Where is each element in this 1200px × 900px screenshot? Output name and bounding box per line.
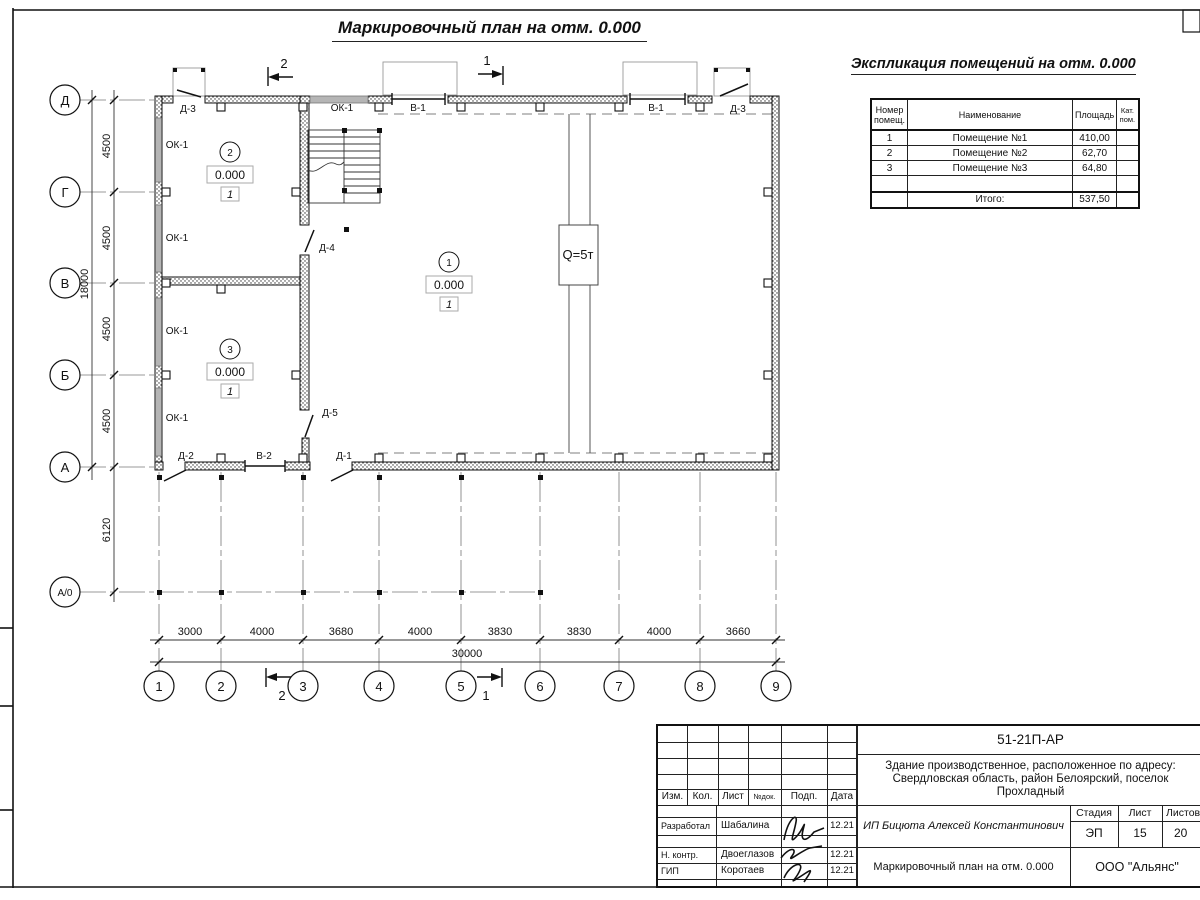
signer-role: Разработал xyxy=(658,817,719,835)
axis-label: 4 xyxy=(375,679,382,694)
client-name: ИП Бицюта Алексей Константинович xyxy=(857,805,1070,847)
window-mark: ОК-1 xyxy=(166,413,189,424)
stamp-col-ndok: №док. xyxy=(748,789,781,805)
axis-label: Г xyxy=(61,185,68,200)
staircase xyxy=(308,128,382,232)
room-num-cell: 3 xyxy=(871,161,907,176)
door-mark: Д-5 xyxy=(322,408,338,419)
table-total-row: Итого: 537,50 xyxy=(871,192,1139,208)
table-row: 2 Помещение №2 62,70 xyxy=(871,146,1139,161)
stamp-col-izm: Изм. xyxy=(658,789,687,805)
dim-label: 4000 xyxy=(647,626,671,638)
crane-capacity-label: Q=5т xyxy=(563,247,594,262)
signer-date: 12.21 xyxy=(827,817,857,835)
sheet-value: 15 xyxy=(1118,821,1162,847)
window-mark: ОК-1 xyxy=(166,326,189,337)
sheets-label: Листов xyxy=(1162,805,1200,821)
dim-label: 3830 xyxy=(488,626,512,638)
room-floor-type: 1 xyxy=(446,299,452,311)
room-name-cell: Помещение №1 xyxy=(907,130,1072,146)
table-row-empty xyxy=(871,176,1139,192)
col-header-number: Номер помещ. xyxy=(871,99,907,130)
room-name-cell: Помещение №2 xyxy=(907,146,1072,161)
explication-header-row: Номер помещ. Наименование Площадь Кат. п… xyxy=(871,99,1139,130)
axis-label: 3 xyxy=(299,679,306,694)
stage-value: ЭП xyxy=(1070,821,1118,847)
room-num-cell: 1 xyxy=(871,130,907,146)
dim-label: 3830 xyxy=(567,626,591,638)
axis-label: 7 xyxy=(615,679,622,694)
walls xyxy=(155,96,779,470)
axis-label: Д xyxy=(61,93,70,108)
signer-name: Шабалина xyxy=(718,817,783,835)
room-area-cell: 410,00 xyxy=(1072,130,1116,146)
room-number: 1 xyxy=(446,258,452,269)
entrance-canopies xyxy=(173,62,750,96)
window-mark: ОК-1 xyxy=(166,233,189,244)
section-label: 1 xyxy=(483,53,490,68)
dim-label: 4500 xyxy=(101,134,113,158)
door-mark: Д-3 xyxy=(180,104,196,115)
total-value: 537,50 xyxy=(1072,192,1116,208)
explication-title: Экспликация помещений на отм. 0.000 xyxy=(851,56,1136,75)
axis-label: Б xyxy=(61,368,70,383)
col-header-area: Площадь xyxy=(1072,99,1116,130)
signer-date: 12.21 xyxy=(827,847,857,863)
title-block: Изм. Кол. Лист №док. Подп. Дата Разработ… xyxy=(656,724,1200,888)
axis-label: 2 xyxy=(217,679,224,694)
empty-cell xyxy=(1117,176,1139,192)
drawing-title: Маркировочный план на отм. 0.000 xyxy=(332,18,647,42)
room-floor-type: 1 xyxy=(227,386,233,398)
room-name-cell: Помещение №3 xyxy=(907,161,1072,176)
dim-offset-label: 6120 xyxy=(101,518,113,542)
axis-label: В xyxy=(61,276,70,291)
dim-label: 4000 xyxy=(250,626,274,638)
dim-total-label: 18000 xyxy=(79,269,91,300)
col-header-name: Наименование xyxy=(907,99,1072,130)
door-mark: Д-3 xyxy=(730,104,746,115)
empty-cell xyxy=(1072,176,1116,192)
sheet-title: Маркировочный план на отм. 0.000 xyxy=(872,847,1055,888)
axis-grid-bottom: 3000 4000 3680 4000 3830 3830 4000 3660 … xyxy=(144,472,791,701)
stamp-col-podp: Подп. xyxy=(781,789,827,805)
stamp-col-list: Лист xyxy=(718,789,748,805)
signer-role: Н. контр. xyxy=(658,847,719,863)
room-elevation: 0.000 xyxy=(215,365,245,379)
dim-label: 4500 xyxy=(101,317,113,341)
room-labels: 2 3 1 0.000 0.000 0.000 1 1 1 xyxy=(207,142,472,398)
dim-label: 4500 xyxy=(101,226,113,250)
stamp-col-kol: Кол. xyxy=(687,789,718,805)
door-mark: Д-2 xyxy=(178,451,194,462)
dim-label: 3680 xyxy=(329,626,353,638)
axis-grid-left: Д Г В Б А А/0 4500 4500 4500 4500 18000 … xyxy=(50,85,540,607)
gate-openings xyxy=(245,93,685,472)
table-row: 1 Помещение №1 410,00 xyxy=(871,130,1139,146)
door-mark: Д-1 xyxy=(336,451,352,462)
axis-label: 5 xyxy=(457,679,464,694)
doc-number: 51-21П-АР xyxy=(857,726,1200,754)
stage-label: Стадия xyxy=(1070,805,1118,821)
stamp-col-data: Дата xyxy=(827,789,857,805)
drawing-sheet: { "title": "Маркировочный план на отм. 0… xyxy=(0,0,1200,900)
room-num-cell: 2 xyxy=(871,146,907,161)
room-elevation: 0.000 xyxy=(434,278,464,292)
dim-label: 3000 xyxy=(178,626,202,638)
room-cat-cell xyxy=(1117,161,1139,176)
signer-name: Коротаев xyxy=(718,863,783,879)
room-elevation: 0.000 xyxy=(215,168,245,182)
dim-label: 4000 xyxy=(408,626,432,638)
empty-cell xyxy=(871,192,907,208)
room-number: 3 xyxy=(227,345,233,356)
room-area-cell: 62,70 xyxy=(1072,146,1116,161)
col-header-category: Кат. пом. xyxy=(1117,99,1139,130)
door-mark: Д-4 xyxy=(319,243,335,254)
section-label: 2 xyxy=(278,688,285,703)
signer-date: 12.21 xyxy=(827,863,857,879)
gate-mark: В-2 xyxy=(256,451,272,462)
axis-label: 9 xyxy=(772,679,779,694)
signer-name: Двоеглазов xyxy=(718,847,783,863)
room-number: 2 xyxy=(227,148,233,159)
dim-total-label: 30000 xyxy=(452,648,483,660)
signature xyxy=(776,842,830,886)
empty-cell xyxy=(907,176,1072,192)
room-floor-type: 1 xyxy=(227,189,233,201)
sheets-value: 20 xyxy=(1162,821,1200,847)
gate-mark: В-1 xyxy=(648,103,664,114)
table-row: 3 Помещение №3 64,80 xyxy=(871,161,1139,176)
section-label: 1 xyxy=(482,688,489,703)
empty-cell xyxy=(871,176,907,192)
dim-label: 3660 xyxy=(726,626,750,638)
sheet-label: Лист xyxy=(1118,805,1162,821)
window-mark: ОК-1 xyxy=(331,103,354,114)
axis-label: 1 xyxy=(155,679,162,694)
object-description: Здание производственное, расположенное п… xyxy=(862,754,1199,805)
section-label: 2 xyxy=(280,56,287,71)
empty-cell xyxy=(1117,192,1139,208)
room-cat-cell xyxy=(1117,146,1139,161)
company-name: ООО "Альянс" xyxy=(1070,847,1200,888)
room-area-cell: 64,80 xyxy=(1072,161,1116,176)
axis-label: 8 xyxy=(696,679,703,694)
explication-table: Номер помещ. Наименование Площадь Кат. п… xyxy=(870,98,1140,209)
axis-label: 6 xyxy=(536,679,543,694)
total-label: Итого: xyxy=(907,192,1072,208)
window-mark: ОК-1 xyxy=(166,140,189,151)
axis-label: А/0 xyxy=(57,588,72,599)
room-cat-cell xyxy=(1117,130,1139,146)
axis-label: А xyxy=(61,460,70,475)
signer-role: ГИП xyxy=(658,863,719,879)
gate-mark: В-1 xyxy=(410,103,426,114)
dim-label: 4500 xyxy=(101,409,113,433)
